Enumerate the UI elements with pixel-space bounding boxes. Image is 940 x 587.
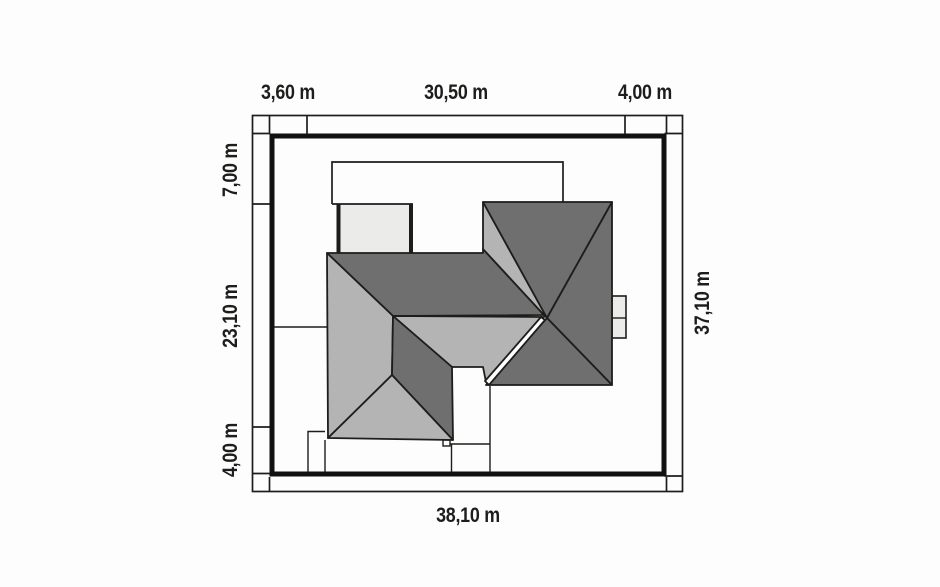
side-step-outline	[308, 432, 325, 473]
building-envelope-line	[332, 162, 563, 204]
dim-label-right: 37,10 m	[691, 271, 715, 335]
dim-label-top-right: 4,00 m	[618, 81, 672, 105]
dim-label-left-lower: 4,00 m	[219, 423, 243, 477]
terrace-floor	[338, 204, 411, 253]
chimney-body	[612, 296, 626, 338]
terrace	[332, 204, 413, 253]
dim-label-left-upper: 7,00 m	[219, 143, 243, 197]
dim-label-top-left: 3,60 m	[261, 81, 315, 105]
dim-label-left-middle: 23,10 m	[219, 284, 243, 348]
dim-label-top-center: 30,50 m	[424, 81, 488, 105]
dim-label-bottom: 38,10 m	[436, 504, 500, 528]
site-plan-page: 3,60 m 30,50 m 4,00 m 7,00 m 23,10 m 4,0…	[0, 0, 940, 587]
chimney	[612, 296, 626, 338]
downspout	[443, 440, 450, 446]
